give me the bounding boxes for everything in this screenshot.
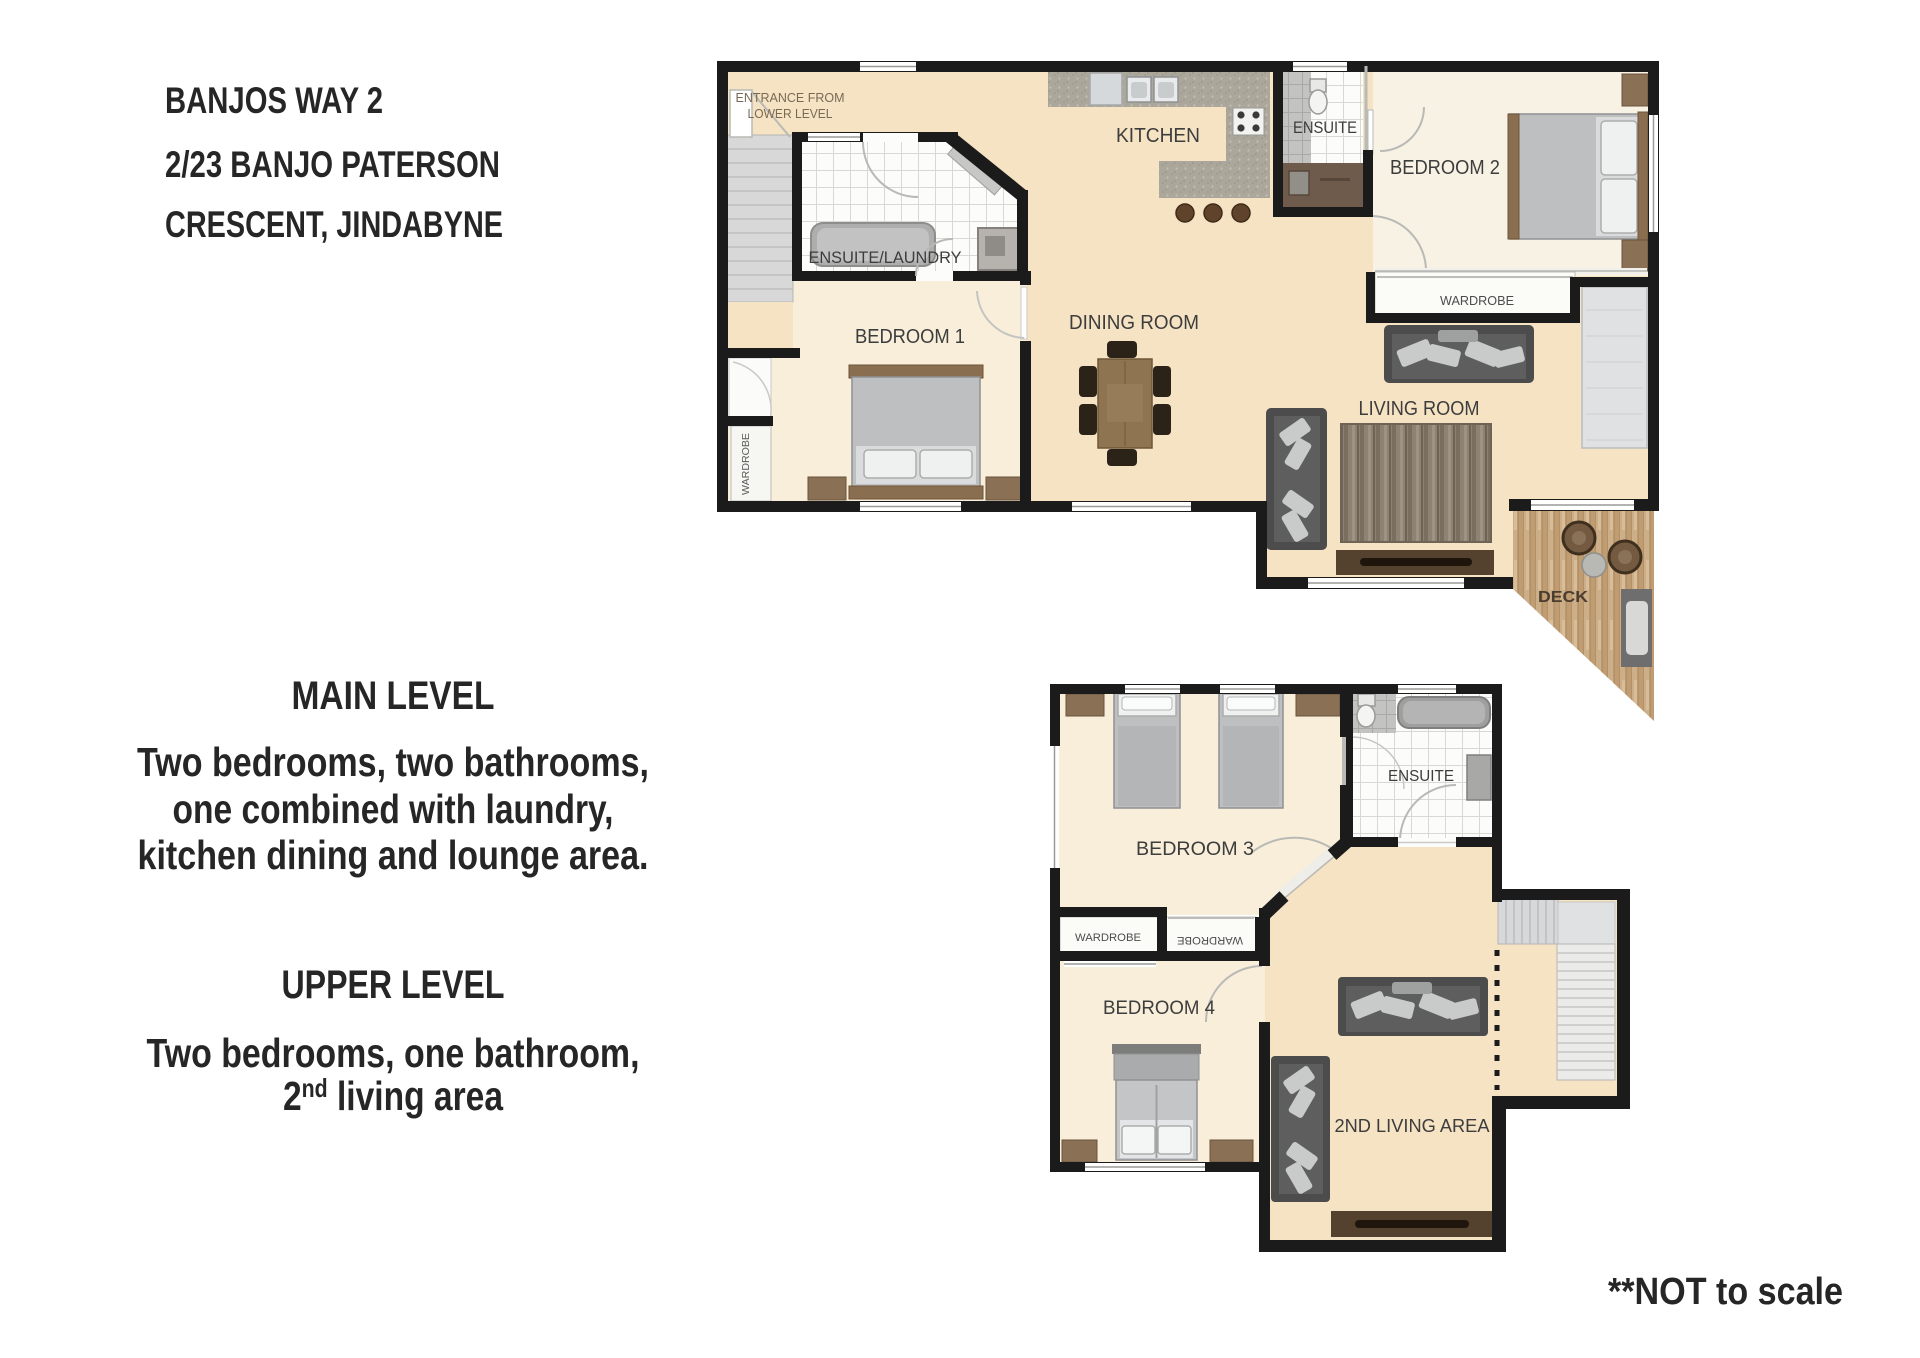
svg-text:DINING ROOM: DINING ROOM (1069, 312, 1199, 334)
svg-text:CRESCENT, JINDABYNE: CRESCENT, JINDABYNE (165, 204, 503, 245)
svg-text:KITCHEN: KITCHEN (1116, 125, 1200, 147)
svg-text:WARDROBE: WARDROBE (1075, 932, 1141, 944)
svg-text:BANJOS WAY 2: BANJOS WAY 2 (165, 80, 383, 121)
svg-text:ENTRANCE FROM: ENTRANCE FROM (736, 90, 845, 105)
svg-text:DECK: DECK (1538, 589, 1588, 606)
svg-text:one combined with laundry,: one combined with laundry, (173, 786, 614, 832)
svg-text:LOWER LEVEL: LOWER LEVEL (748, 106, 833, 121)
svg-text:Two bedrooms, one bathroom,: Two bedrooms, one bathroom, (147, 1030, 640, 1076)
svg-text:WARDROBE: WARDROBE (1177, 934, 1243, 946)
svg-text:ENSUITE: ENSUITE (1293, 118, 1357, 137)
svg-text:MAIN LEVEL: MAIN LEVEL (292, 674, 495, 718)
svg-text:2ND LIVING AREA: 2ND LIVING AREA (1335, 1116, 1490, 1136)
svg-text:BEDROOM 4: BEDROOM 4 (1103, 998, 1215, 1019)
svg-text:**NOT to scale: **NOT to scale (1608, 1271, 1843, 1313)
svg-text:kitchen dining and lounge area: kitchen dining and lounge area. (138, 832, 649, 878)
svg-text:ENSUITE/LAUNDRY: ENSUITE/LAUNDRY (809, 248, 962, 267)
svg-text:BEDROOM 3: BEDROOM 3 (1136, 839, 1254, 860)
svg-text:Two bedrooms, two bathrooms,: Two bedrooms, two bathrooms, (137, 739, 649, 785)
svg-text:BEDROOM 1: BEDROOM 1 (855, 326, 965, 348)
svg-text:WARDROBE: WARDROBE (1440, 293, 1514, 308)
svg-text:2/23 BANJO PATERSON: 2/23 BANJO PATERSON (165, 144, 500, 185)
svg-text:ENSUITE: ENSUITE (1388, 768, 1454, 785)
svg-text:LIVING ROOM: LIVING ROOM (1359, 398, 1480, 420)
svg-text:BEDROOM 2: BEDROOM 2 (1390, 157, 1500, 179)
svg-text:UPPER LEVEL: UPPER LEVEL (282, 963, 505, 1007)
svg-text:WARDROBE: WARDROBE (741, 433, 752, 495)
